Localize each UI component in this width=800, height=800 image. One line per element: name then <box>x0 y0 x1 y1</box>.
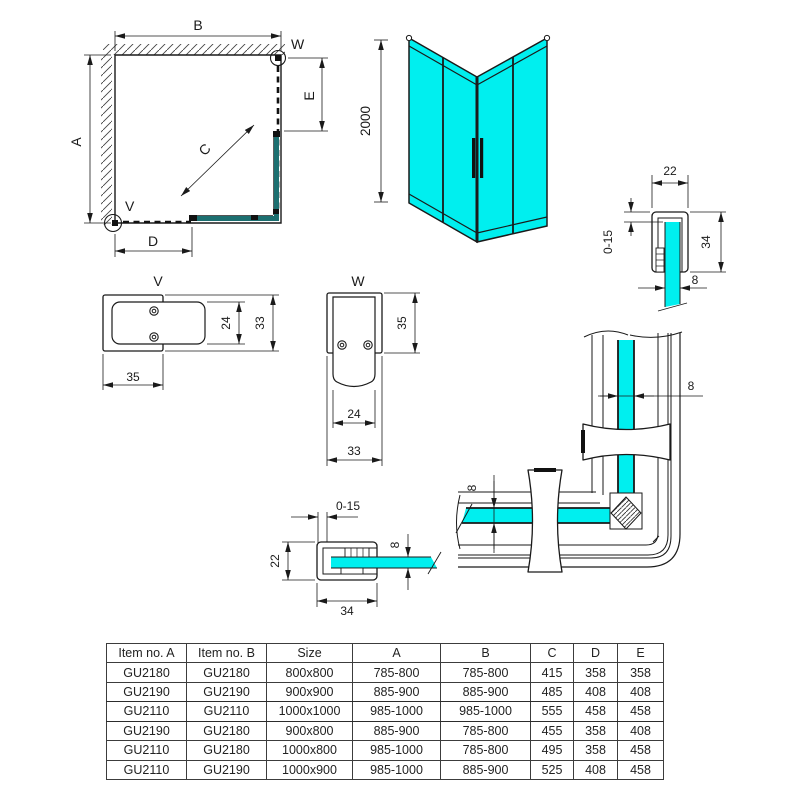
handle-horizontal-door <box>528 468 562 572</box>
table-cell: GU2190 <box>187 760 267 779</box>
table-cell: GU2110 <box>107 741 187 760</box>
table-cell: 358 <box>574 741 618 760</box>
dim-0-15-label: 0-15 <box>336 499 360 513</box>
table-cell: 358 <box>574 663 618 682</box>
table-cell: 885-900 <box>353 721 441 740</box>
table-row: GU2190 GU2180 900x800 885-900 785-800 45… <box>107 721 664 740</box>
dim-a-label: A <box>68 137 84 147</box>
dim-22-label: 22 <box>268 554 282 568</box>
dim-34-label: 34 <box>340 604 354 618</box>
table-cell: 785-800 <box>353 663 441 682</box>
table-cell: 800x800 <box>267 663 353 682</box>
glass-vertical <box>618 340 634 502</box>
table-cell: 900x900 <box>267 682 353 701</box>
table-cell: 358 <box>618 663 664 682</box>
corner-connector <box>610 493 642 529</box>
table-cell: 415 <box>531 663 574 682</box>
detail-v-ref-label: V <box>125 198 135 214</box>
wall-hatch-left <box>101 55 112 225</box>
dim-c-label: C <box>195 140 213 159</box>
dim-24-label: 24 <box>347 407 361 421</box>
table-cell: 458 <box>618 760 664 779</box>
table-cell: 555 <box>531 702 574 721</box>
table-cell: 1000x800 <box>267 741 353 760</box>
dim-b-label: B <box>193 17 202 33</box>
dim-24-label: 24 <box>219 316 233 330</box>
table-header-cell: A <box>353 644 441 663</box>
detail-v-view: V 24 33 35 <box>83 270 293 402</box>
table-cell: 485 <box>531 682 574 701</box>
clamp-block <box>656 248 664 272</box>
table-cell: 408 <box>574 760 618 779</box>
table-cell: 408 <box>618 682 664 701</box>
dim-8-top-label: 8 <box>688 379 695 393</box>
dimension-22 <box>652 175 688 208</box>
table-cell: 1000x1000 <box>267 702 353 721</box>
detail-w-view: W 35 24 33 <box>303 270 445 475</box>
table-cell: 785-800 <box>441 721 531 740</box>
corner-cap-right <box>544 35 549 40</box>
table-cell: 785-800 <box>441 663 531 682</box>
dim-35-label: 35 <box>395 316 409 330</box>
table-cell: 458 <box>618 702 664 721</box>
dimension-22 <box>282 542 315 580</box>
table-cell: 985-1000 <box>353 741 441 760</box>
table-cell: GU2180 <box>187 741 267 760</box>
table-header-row: Item no. A Item no. B Size A B C D E <box>107 644 664 663</box>
spec-table-container: Item no. A Item no. B Size A B C D E GU2… <box>106 643 663 780</box>
table-cell: GU2110 <box>107 702 187 721</box>
detail-w-marker <box>275 55 281 61</box>
table-cell: 985-1000 <box>353 760 441 779</box>
dim-8-left-label: 8 <box>465 484 479 491</box>
table-cell: 495 <box>531 741 574 760</box>
table-cell: GU2110 <box>187 702 267 721</box>
technical-drawing-sheet: B A E D C <box>0 0 800 800</box>
table-cell: 458 <box>574 702 618 721</box>
table-cell: GU2180 <box>187 721 267 740</box>
table-header-cell: Size <box>267 644 353 663</box>
dim-34-label: 34 <box>699 235 713 249</box>
table-header-cell: D <box>574 644 618 663</box>
table-cell: 408 <box>618 721 664 740</box>
wall-hatch-top <box>103 44 285 55</box>
table-cell: 525 <box>531 760 574 779</box>
enclosure-outline <box>115 55 281 223</box>
table-row: GU2110 GU2180 1000x800 985-1000 785-800 … <box>107 741 664 760</box>
table-row: GU2190 GU2190 900x900 885-900 885-900 48… <box>107 682 664 701</box>
dim-33-label: 33 <box>253 316 267 330</box>
table-cell: 458 <box>618 741 664 760</box>
dim-8-label: 8 <box>388 541 402 548</box>
dim-e-label: E <box>301 91 317 100</box>
plan-view: B A E D C <box>55 10 345 275</box>
wall-profile-section-top: 22 0-15 34 <box>598 158 800 325</box>
spec-table: Item no. A Item no. B Size A B C D E GU2… <box>106 643 664 780</box>
height-dimension-2000 <box>374 40 388 202</box>
dim-d-label: D <box>148 233 158 249</box>
detail-v-marker <box>112 220 118 226</box>
table-header-cell: Item no. A <box>107 644 187 663</box>
table-cell: GU2190 <box>107 721 187 740</box>
table-cell: 785-800 <box>441 741 531 760</box>
corner-section-detail: 8 8 <box>428 323 800 615</box>
table-row: GU2110 GU2190 1000x900 985-1000 885-900 … <box>107 760 664 779</box>
table-row: GU2110 GU2110 1000x1000 985-1000 985-100… <box>107 702 664 721</box>
table-cell: 455 <box>531 721 574 740</box>
front-perspective-view: 2000 <box>358 18 573 253</box>
table-cell: 885-900 <box>353 682 441 701</box>
dim-0-15-label: 0-15 <box>601 230 615 254</box>
table-cell: 900x800 <box>267 721 353 740</box>
table-cell: GU2180 <box>187 663 267 682</box>
table-cell: 1000x900 <box>267 760 353 779</box>
dim-33-label: 33 <box>347 444 361 458</box>
height-2000-label: 2000 <box>358 106 373 136</box>
table-cell: 885-900 <box>441 682 531 701</box>
dim-22-label: 22 <box>663 164 677 178</box>
detail-v-title: V <box>153 273 163 289</box>
table-header-cell: C <box>531 644 574 663</box>
table-header-cell: E <box>618 644 664 663</box>
table-cell: 885-900 <box>441 760 531 779</box>
table-cell: GU2110 <box>107 760 187 779</box>
corner-cap-left <box>406 35 411 40</box>
table-header-cell: B <box>441 644 531 663</box>
table-cell: 358 <box>574 721 618 740</box>
dim-8-label: 8 <box>692 273 699 287</box>
table-row: GU2180 GU2180 800x800 785-800 785-800 41… <box>107 663 664 682</box>
table-header-cell: Item no. B <box>187 644 267 663</box>
table-cell: 985-1000 <box>441 702 531 721</box>
dimension-c <box>181 125 254 196</box>
table-cell: 985-1000 <box>353 702 441 721</box>
table-cell: GU2180 <box>107 663 187 682</box>
table-cell: 408 <box>574 682 618 701</box>
detail-w-ref-label: W <box>291 36 305 52</box>
handle-vertical-door <box>581 424 670 460</box>
dim-35-label: 35 <box>126 370 140 384</box>
table-cell: GU2190 <box>107 682 187 701</box>
detail-w-title: W <box>351 273 365 289</box>
table-cell: GU2190 <box>187 682 267 701</box>
